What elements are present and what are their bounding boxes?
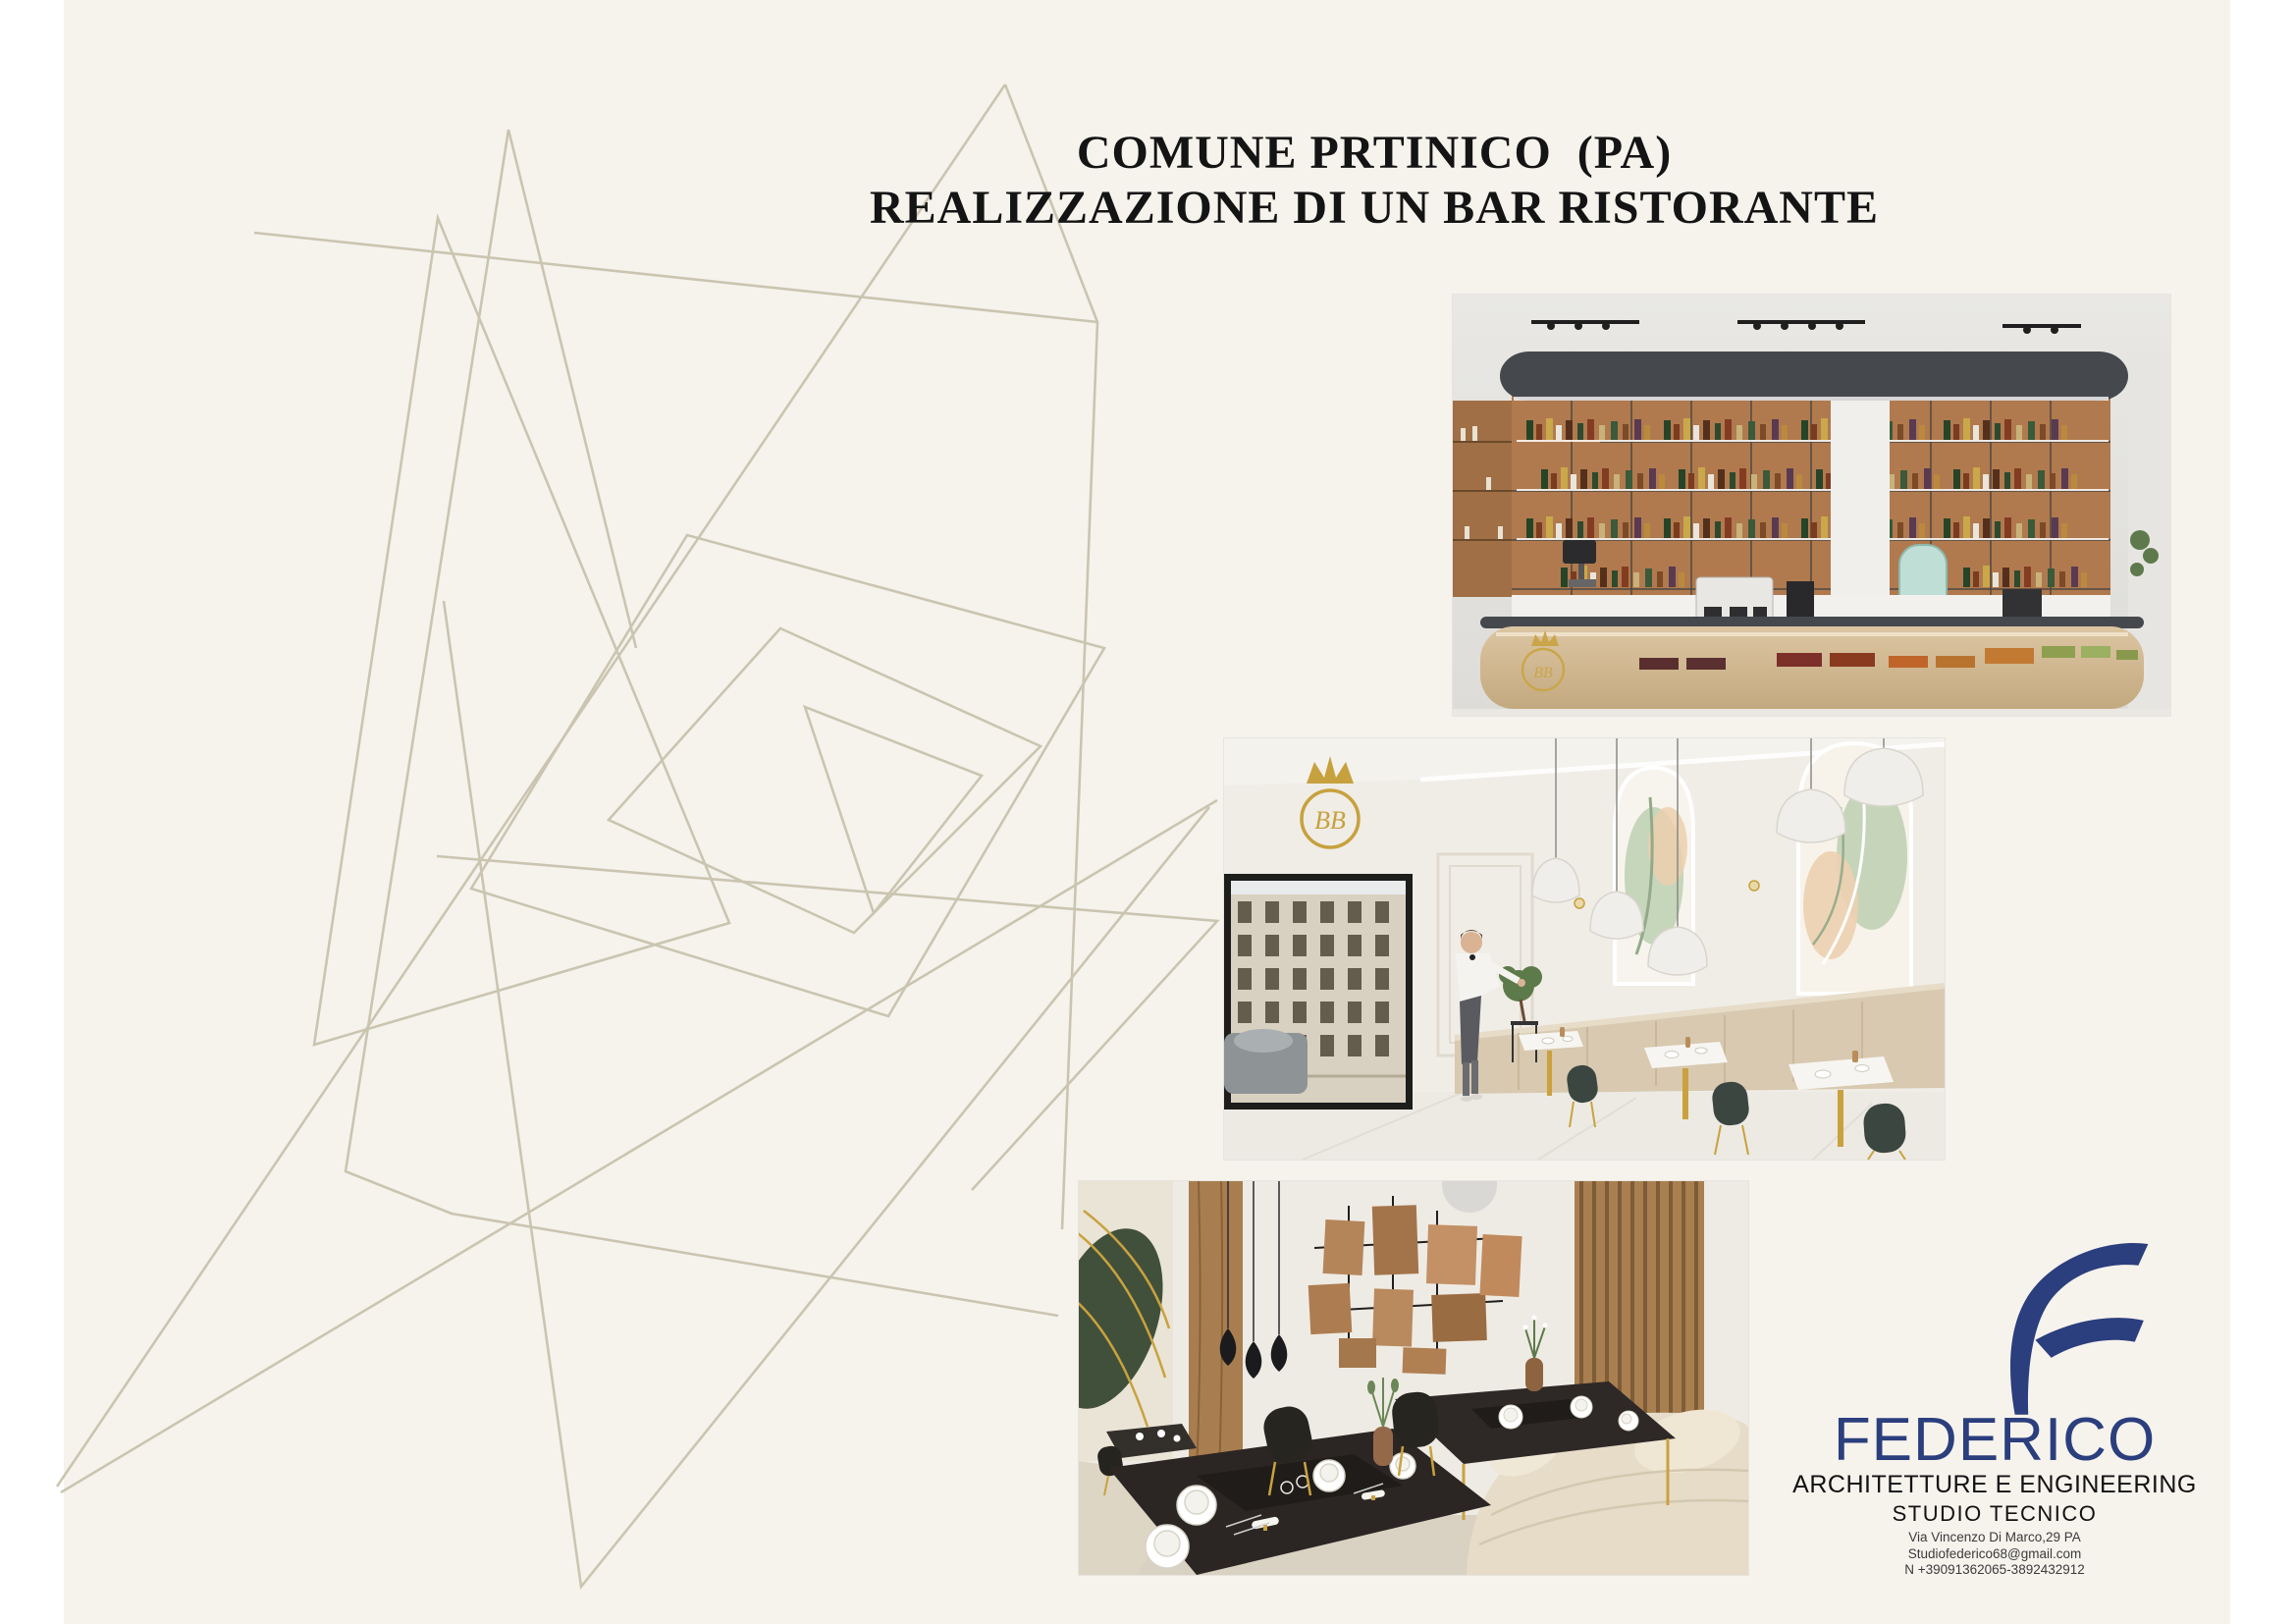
brand-block: FEDERICO ARCHITETTURE E ENGINEERING STUD…: [1789, 1235, 2201, 1579]
bar-interior-render: BB: [1453, 295, 2170, 716]
leaf-mural: [1079, 1181, 1184, 1461]
page-title: COMUNE PRTINICO (PA) REALIZZAZIONE DI UN…: [864, 126, 1885, 236]
brand-phone: N +39091362065-3892432912: [1789, 1562, 2201, 1579]
espresso-machine-icon: [1696, 577, 1773, 623]
marble-floor: [1453, 709, 2170, 716]
brand-address: Via Vincenzo Di Marco,29 PA: [1789, 1530, 2201, 1546]
wood-column: [1189, 1181, 1243, 1476]
dining-tables-render: [1079, 1181, 1748, 1575]
title-line-2: REALIZZAZIONE DI UN BAR RISTORANTE: [864, 181, 1885, 236]
bar-front: [1480, 626, 2144, 709]
brand-wordmark: FEDERICO: [1789, 1412, 2201, 1469]
dining-room-render: BB: [1224, 738, 1945, 1160]
bar-canopy: [1500, 352, 2128, 401]
title-line-1: COMUNE PRTINICO (PA): [864, 126, 1885, 181]
presentation-page: COMUNE PRTINICO (PA) REALIZZAZIONE DI UN…: [0, 0, 2296, 1624]
svg-text:BB: BB: [1533, 665, 1553, 681]
brand-email: Studiofederico68@gmail.com: [1789, 1546, 2201, 1563]
brand-studio: STUDIO TECNICO: [1789, 1501, 2201, 1526]
coffee-grinder-icon: [1787, 581, 1814, 623]
center-pillar: [1831, 393, 1890, 623]
svg-text:BB: BB: [1314, 806, 1346, 835]
federico-logo-icon: [1924, 1235, 2164, 1422]
brand-tagline: ARCHITETTURE E ENGINEERING: [1789, 1471, 2201, 1498]
